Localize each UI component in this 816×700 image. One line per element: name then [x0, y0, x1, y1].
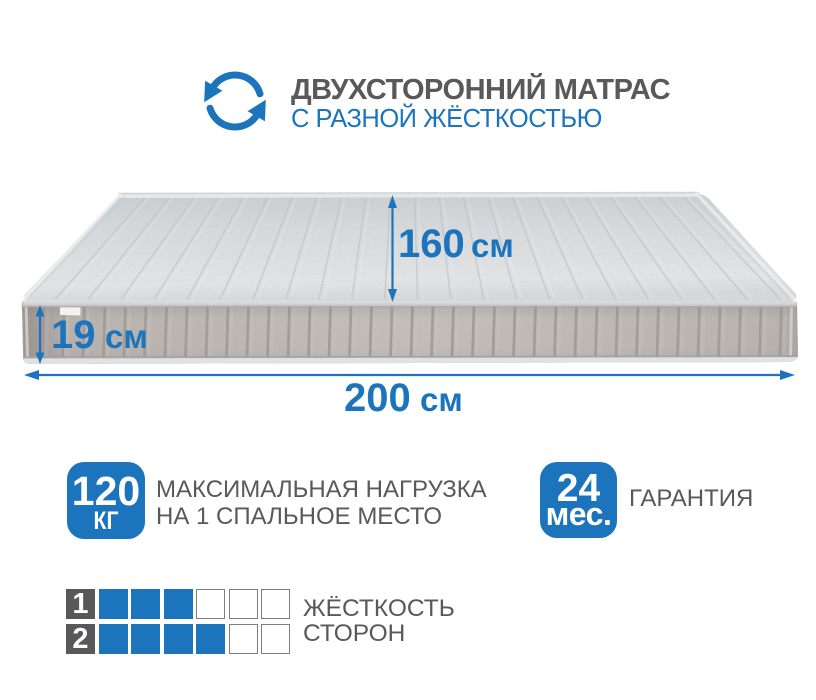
svg-text:200: 200	[344, 376, 411, 420]
svg-text:см: см	[471, 227, 514, 264]
svg-text:см: см	[420, 381, 463, 418]
svg-text:160: 160	[398, 222, 465, 266]
svg-text:19: 19	[51, 313, 96, 357]
svg-text:см: см	[105, 318, 148, 355]
